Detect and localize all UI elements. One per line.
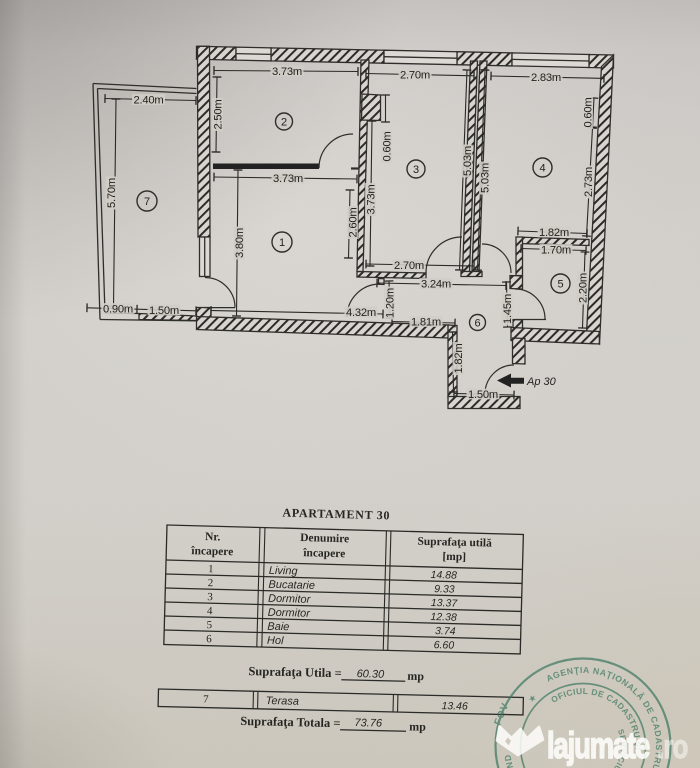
svg-text:7: 7	[144, 196, 150, 208]
svg-text:Nr.: Nr.	[205, 531, 221, 543]
svg-text:3.24m: 3.24m	[421, 278, 451, 290]
svg-text:1.20m: 1.20m	[384, 288, 396, 318]
svg-text:1.50m: 1.50m	[149, 305, 179, 317]
svg-text:0.90m: 0.90m	[103, 303, 133, 315]
svg-text:5.70m: 5.70m	[106, 178, 118, 208]
svg-text:[mp]: [mp]	[442, 551, 466, 564]
svg-text:mp: mp	[407, 669, 424, 683]
svg-text:încapere: încapere	[190, 545, 233, 558]
svg-text:3.80m: 3.80m	[234, 228, 246, 258]
svg-text:.ro: .ro	[657, 729, 688, 766]
svg-text:12.38: 12.38	[430, 611, 457, 624]
svg-text:4: 4	[207, 605, 213, 617]
svg-text:1: 1	[208, 563, 214, 575]
svg-text:1.70m: 1.70m	[541, 244, 571, 256]
svg-text:2.83m: 2.83m	[531, 72, 561, 84]
svg-text:1.82m: 1.82m	[539, 227, 569, 239]
svg-text:14.88: 14.88	[430, 569, 457, 582]
svg-text:2.20m: 2.20m	[577, 273, 589, 303]
svg-text:Suprafaţa Utila =: Suprafaţa Utila =	[248, 664, 342, 680]
svg-text:3.73m: 3.73m	[272, 66, 302, 78]
svg-text:1.45m: 1.45m	[502, 294, 514, 324]
svg-text:3.73m: 3.73m	[273, 173, 303, 185]
svg-text:2.70m: 2.70m	[394, 260, 424, 272]
svg-text:6: 6	[474, 318, 480, 330]
svg-text:0.60m: 0.60m	[582, 97, 594, 127]
svg-text:2.40m: 2.40m	[133, 94, 163, 106]
svg-text:1: 1	[279, 237, 285, 249]
svg-text:5: 5	[557, 279, 563, 291]
svg-text:Ap 30: Ap 30	[526, 376, 557, 388]
svg-text:Suprafaţa Totala =: Suprafaţa Totala =	[240, 714, 341, 730]
svg-text:13.37: 13.37	[431, 597, 459, 610]
svg-text:5: 5	[206, 619, 212, 631]
svg-text:1.81m: 1.81m	[411, 316, 441, 328]
svg-text:2: 2	[281, 117, 287, 129]
svg-text:Bucatarie: Bucatarie	[268, 579, 315, 592]
svg-text:încapere: încapere	[302, 547, 345, 560]
svg-text:Living: Living	[269, 565, 299, 578]
svg-text:2.73m: 2.73m	[583, 167, 595, 197]
svg-text:60.30: 60.30	[356, 668, 385, 681]
svg-text:Suprafaţa utilă: Suprafaţa utilă	[417, 536, 492, 550]
svg-text:3: 3	[207, 591, 213, 603]
svg-text:3.74: 3.74	[435, 625, 456, 638]
svg-text:1.50m: 1.50m	[468, 389, 498, 401]
svg-text:Dormitor: Dormitor	[268, 607, 312, 620]
svg-text:3: 3	[413, 164, 419, 176]
svg-text:2.60m: 2.60m	[347, 207, 359, 237]
svg-text:Denumire: Denumire	[300, 532, 349, 545]
svg-text:1.82m: 1.82m	[453, 343, 465, 373]
svg-text:2: 2	[208, 577, 214, 589]
svg-text:5.03m: 5.03m	[479, 163, 491, 193]
svg-text:73.76: 73.76	[354, 717, 383, 730]
svg-text:Hol: Hol	[267, 635, 284, 647]
svg-text:6.60: 6.60	[434, 639, 455, 652]
svg-text:APARTAMENT 30: APARTAMENT 30	[282, 506, 390, 523]
svg-text:2.70m: 2.70m	[400, 69, 430, 81]
svg-text:Terasa: Terasa	[266, 695, 300, 708]
svg-text:0.60m: 0.60m	[381, 131, 393, 161]
svg-text:lajumate: lajumate	[547, 725, 649, 766]
svg-text:2.50m: 2.50m	[212, 99, 224, 129]
svg-text:6: 6	[206, 633, 212, 645]
svg-text:Dormitor: Dormitor	[268, 593, 312, 606]
svg-text:3.73m: 3.73m	[365, 184, 377, 214]
svg-text:Baie: Baie	[267, 621, 289, 634]
svg-text:4.32m: 4.32m	[346, 307, 376, 319]
svg-text:13.46: 13.46	[441, 700, 468, 713]
svg-text:5.03m: 5.03m	[462, 146, 474, 176]
svg-text:4: 4	[539, 163, 545, 175]
svg-text:mp: mp	[409, 719, 426, 733]
svg-text:9.33: 9.33	[434, 583, 455, 596]
svg-text:7: 7	[203, 694, 209, 706]
